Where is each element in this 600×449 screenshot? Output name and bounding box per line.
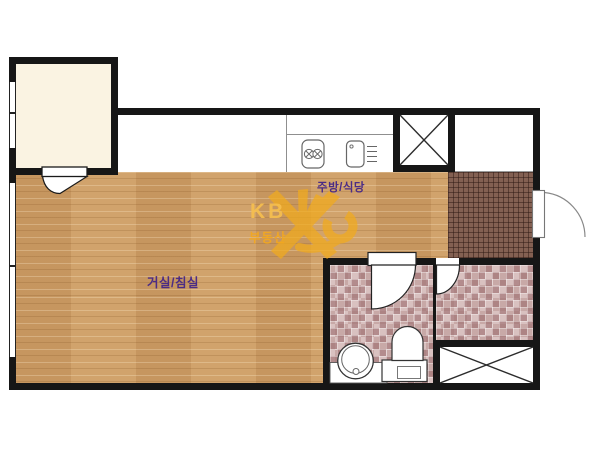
window-icon-balcony	[9, 82, 16, 148]
balcony-wall-left-a	[9, 57, 16, 82]
bathroom-wall-left	[323, 258, 330, 390]
entry-tile-floor	[448, 172, 533, 258]
bathroom-sub-floor	[436, 265, 533, 340]
balcony-wall-right	[111, 57, 118, 175]
shaft-box-bottom	[440, 347, 533, 383]
counter-divider-line	[286, 115, 287, 172]
counter-front-line	[286, 134, 393, 135]
bathroom-wall-top-b	[415, 258, 436, 265]
storage-wall-top	[433, 340, 540, 347]
floorplan-canvas: KB 부동산 주방/식당 거실/침실	[0, 0, 600, 449]
wall-right-upper	[533, 108, 540, 190]
living-room-label: 거실/침실	[147, 272, 199, 291]
balcony-floor	[16, 64, 111, 168]
window-mullion	[10, 112, 15, 114]
shaft-top-wall-bottom	[393, 165, 455, 172]
kb-watermark-subtitle: 부동산	[249, 227, 287, 246]
kb-watermark-brand: KB	[250, 200, 286, 224]
storage-wall-left	[433, 340, 440, 390]
balcony-wall-bottom-b	[87, 168, 118, 175]
bathroom-wall-top-a	[323, 258, 371, 265]
balcony-wall-bottom-a	[9, 168, 42, 175]
wall-bottom	[9, 383, 540, 390]
window-icon-living	[9, 183, 16, 357]
balcony-wall-top	[9, 57, 118, 64]
kitchen-room-label: 주방/식당	[317, 179, 365, 195]
shaft-top-wall-right	[448, 108, 455, 172]
door-swing-icon-entrance	[533, 191, 586, 238]
bathroom-wall-top-c	[459, 258, 540, 265]
living-room-floor-upper	[16, 172, 448, 258]
kitchen-counter-area	[118, 115, 393, 172]
closet-room	[455, 115, 533, 172]
window-mullion	[10, 265, 15, 267]
bathroom-floor	[330, 265, 433, 383]
shaft-box-top	[400, 115, 448, 165]
wall-top-main	[111, 108, 540, 115]
bathroom-divider-wall	[433, 265, 436, 340]
wall-left-lower	[9, 357, 16, 390]
shaft-top-wall-left	[393, 108, 400, 172]
